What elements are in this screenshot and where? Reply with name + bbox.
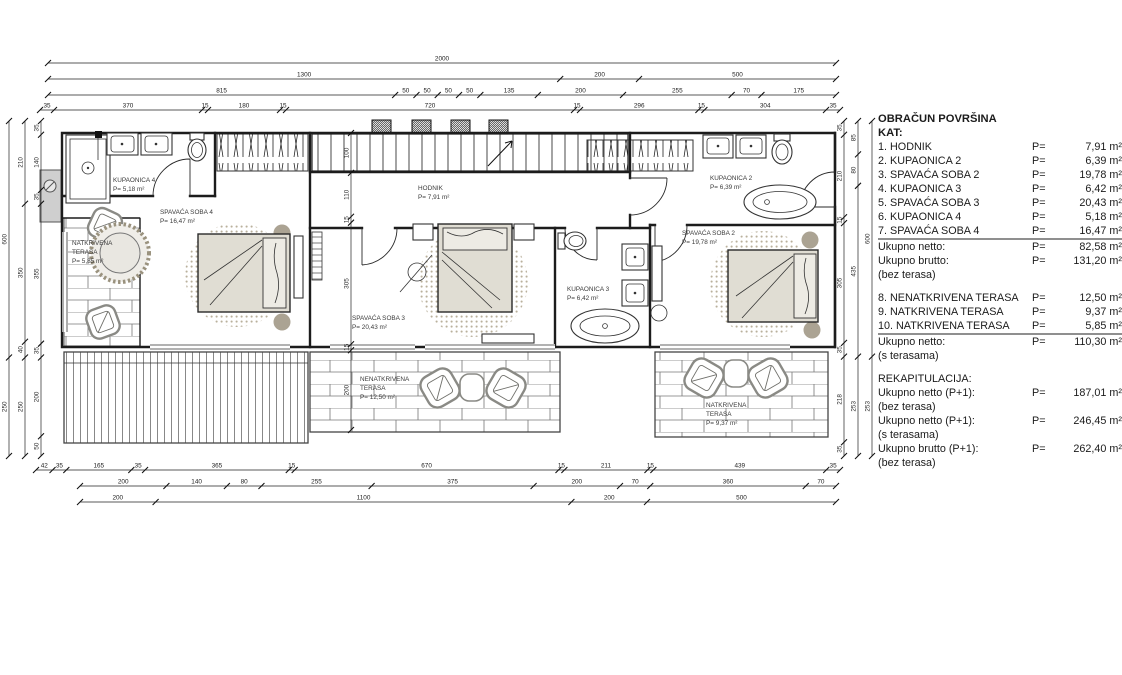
- dimension-value: 2000: [435, 56, 450, 63]
- dimension-value: 600: [865, 233, 872, 244]
- dimension-value: 360: [723, 479, 734, 486]
- area-row-label: REKAPITULACIJA:: [878, 372, 1032, 386]
- dimension-value: 15: [288, 463, 296, 470]
- area-row-label: (s terasama): [878, 349, 1032, 363]
- dimension-chain-bottom_lower: 2001100200500: [77, 495, 839, 506]
- area-row-p: P=: [1032, 386, 1060, 400]
- area-row-value: 5,85 m²: [1060, 319, 1122, 333]
- dimension-value: 35: [56, 463, 64, 470]
- area-row: (s terasama): [878, 349, 1122, 363]
- nightstand-bed2-bottom: [804, 322, 821, 339]
- nightstand-bed3-right: [514, 224, 534, 240]
- window-strip-bedroom4: [150, 344, 290, 350]
- exterior-unit: [40, 170, 61, 222]
- dimension-chain-right_inner: 35210153053521835: [837, 118, 848, 459]
- floorplan-sheet: KUPAONICA 4 P= 5,18 m² SPAVAĆA SOBA 4 P=…: [0, 0, 1122, 675]
- dimension-value: 305: [344, 278, 351, 289]
- svg-text:P= 5,18 m²: P= 5,18 m²: [113, 186, 144, 193]
- dimension-chain-left_outer: 600250: [2, 118, 13, 459]
- area-row-label: 8. NENATKRIVENA TERASA: [878, 291, 1032, 305]
- area-row-label: Ukupno netto (P+1):: [878, 386, 1032, 400]
- area-row: Ukupno netto (P+1):P=187,01 m²: [878, 386, 1122, 400]
- area-rows: 1. HODNIKP=7,91 m²2. KUPAONICA 2P=6,39 m…: [878, 140, 1122, 470]
- area-row-label: 10. NATKRIVENA TERASA: [878, 319, 1032, 333]
- dimension-value: 250: [18, 401, 25, 412]
- area-row: Ukupno netto:P=110,30 m²: [878, 335, 1122, 349]
- svg-text:P= 6,39 m²: P= 6,39 m²: [710, 184, 741, 191]
- table-uncovered-terrace: [460, 374, 484, 401]
- dimension-value: 35: [34, 193, 41, 201]
- area-row-label: 6. KUPAONICA 4: [878, 210, 1032, 224]
- dimension-value: 1100: [357, 495, 371, 502]
- area-row-label: Ukupno netto:: [878, 335, 1032, 349]
- dimension-value: 670: [421, 463, 432, 470]
- area-row-value: 20,43 m²: [1060, 196, 1122, 210]
- dimension-value: 50: [466, 88, 474, 95]
- area-row-p: P=: [1032, 196, 1060, 210]
- dimension-value: 253: [865, 401, 872, 412]
- dimension-chain-top.3: 353701518015720152961530435: [37, 103, 843, 114]
- area-row-value: 7,91 m²: [1060, 140, 1122, 154]
- svg-text:P= 12,50 m²: P= 12,50 m²: [360, 394, 395, 401]
- dimension-value: 211: [601, 463, 612, 470]
- area-row: 3. SPAVAĆA SOBA 2P=19,78 m²: [878, 168, 1122, 182]
- dimension-value: 200: [575, 88, 586, 95]
- dimension-value: 439: [734, 463, 745, 470]
- svg-text:TERASA: TERASA: [72, 249, 98, 256]
- dimension-value: 305: [837, 277, 844, 288]
- area-row-value: 246,45 m²: [1060, 414, 1122, 428]
- dimension-chain-right_outer: 600253: [865, 118, 876, 459]
- dimension-value: 85: [851, 134, 858, 142]
- dresser-bedroom2: [652, 246, 662, 301]
- area-row-value: 16,47 m²: [1060, 224, 1122, 238]
- nightstand-bed4-bottom: [274, 314, 291, 331]
- dimension-value: 600: [2, 233, 9, 244]
- door-hall-bathroom2: [630, 178, 667, 215]
- dimension-value: 200: [571, 479, 582, 486]
- area-row-p: P=: [1032, 140, 1060, 154]
- label-terrace-left: NATKRIVENA: [72, 240, 113, 247]
- dimension-value: 35: [34, 124, 41, 132]
- area-row-value: 131,20 m²: [1060, 254, 1122, 268]
- dimension-value: 15: [647, 463, 655, 470]
- area-row-spacer: [878, 363, 1122, 372]
- area-row-p: P=: [1032, 291, 1060, 305]
- area-row-label: 2. KUPAONICA 2: [878, 154, 1032, 168]
- dimension-value: 180: [239, 103, 250, 110]
- dimension-value: 15: [201, 103, 209, 110]
- area-row: (bez terasa): [878, 268, 1122, 282]
- wardrobe-left: [217, 134, 308, 171]
- area-row: 2. KUPAONICA 2P=6,39 m²: [878, 154, 1122, 168]
- area-row: Ukupno netto (P+1):P=246,45 m²: [878, 414, 1122, 428]
- panel-title: OBRAČUN POVRŠINA: [878, 112, 1122, 126]
- dimension-chain-left_middle: 21035040250: [18, 118, 29, 459]
- area-row-value: 6,42 m²: [1060, 182, 1122, 196]
- area-row-label: 1. HODNIK: [878, 140, 1032, 154]
- window-strip-bedroom2: [660, 344, 790, 350]
- area-row-value: 110,30 m²: [1060, 335, 1122, 349]
- dimension-value: 15: [698, 103, 706, 110]
- dimension-chain-top.1: 1300200500: [45, 72, 839, 83]
- area-row-value: 9,37 m²: [1060, 305, 1122, 319]
- dimension-value: 15: [279, 103, 287, 110]
- area-row-p: P=: [1032, 414, 1060, 428]
- dimension-value: 200: [344, 384, 351, 395]
- area-row: 6. KUPAONICA 4P=5,18 m²: [878, 210, 1122, 224]
- window-strip-terrace-left: [62, 232, 68, 332]
- dimension-value: 200: [118, 479, 129, 486]
- dimension-value: 15: [344, 216, 351, 224]
- dimension-value: 435: [851, 265, 858, 276]
- door-bathroom4: [153, 159, 190, 196]
- dimension-value: 35: [837, 346, 844, 354]
- area-row-p: P=: [1032, 182, 1060, 196]
- dimension-value: 375: [447, 479, 458, 486]
- area-row: REKAPITULACIJA:: [878, 372, 1122, 386]
- nightstand-bed3-left: [413, 224, 433, 240]
- dimension-value: 500: [736, 495, 747, 502]
- area-row: 10. NATKRIVENA TERASAP=5,85 m²: [878, 319, 1122, 335]
- dimension-chain-bottom_middle: 200140802553752007036070: [77, 479, 839, 490]
- area-row-label: (bez terasa): [878, 456, 1032, 470]
- dimension-value: 1300: [297, 72, 312, 79]
- area-row-value: 6,39 m²: [1060, 154, 1122, 168]
- dimension-chain-right_middle: 8580435253: [851, 118, 862, 459]
- area-row-value: 187,01 m²: [1060, 386, 1122, 400]
- dimension-value: 15: [344, 343, 351, 351]
- area-row-spacer: [878, 282, 1122, 291]
- dimension-value: 110: [344, 189, 351, 200]
- dimension-value: 200: [604, 495, 615, 502]
- area-row: (bez terasa): [878, 400, 1122, 414]
- area-row-label: 3. SPAVAĆA SOBA 2: [878, 168, 1032, 182]
- dimension-value: 50: [424, 88, 432, 95]
- area-row-label: Ukupno netto:: [878, 240, 1032, 254]
- area-row: (bez terasa): [878, 456, 1122, 470]
- area-row-label: (bez terasa): [878, 268, 1032, 282]
- area-row: 1. HODNIKP=7,91 m²: [878, 140, 1122, 154]
- area-row-p: P=: [1032, 168, 1060, 182]
- area-row: (s terasama): [878, 428, 1122, 442]
- tub-bathroom3: [571, 309, 639, 343]
- dimension-value: 720: [425, 103, 436, 110]
- closet-strip: [312, 232, 322, 280]
- area-row-p: P=: [1032, 224, 1060, 238]
- area-row: 9. NATKRIVENA TERASAP=9,37 m²: [878, 305, 1122, 319]
- dimension-value: 815: [216, 88, 227, 95]
- area-row: 5. SPAVAĆA SOBA 3P=20,43 m²: [878, 196, 1122, 210]
- dimension-value: 35: [837, 445, 844, 453]
- dimension-value: 200: [34, 391, 41, 402]
- dimension-value: 210: [837, 170, 844, 181]
- dimension-value: 365: [212, 463, 223, 470]
- area-row-p: P=: [1032, 254, 1060, 268]
- dimension-value: 200: [594, 72, 605, 79]
- label-bedroom2: SPAVAĆA SOBA 2: [682, 228, 735, 237]
- label-bathroom2: KUPAONICA 2: [710, 175, 753, 182]
- area-row-value: 12,50 m²: [1060, 291, 1122, 305]
- area-row: Ukupno netto:P=82,58 m²: [878, 240, 1122, 254]
- label-hall: HODNIK: [418, 185, 444, 192]
- dimension-value: 296: [634, 103, 645, 110]
- area-row-label: 4. KUPAONICA 3: [878, 182, 1032, 196]
- area-row-label: 9. NATKRIVENA TERASA: [878, 305, 1032, 319]
- dimension-value: 35: [43, 103, 51, 110]
- panel-subtitle: KAT:: [878, 126, 1122, 140]
- dimension-value: 40: [18, 346, 25, 354]
- nightstand-bed2-top: [802, 232, 819, 249]
- dimension-value: 250: [2, 401, 9, 412]
- bench-bedroom3: [482, 334, 534, 343]
- svg-text:TERASA: TERASA: [360, 385, 386, 392]
- area-row: 4. KUPAONICA 3P=6,42 m²: [878, 182, 1122, 196]
- dimension-value: 35: [34, 347, 41, 355]
- area-row-value: 5,18 m²: [1060, 210, 1122, 224]
- window-strip-bedroom3b: [425, 344, 555, 350]
- dimension-value: 35: [829, 103, 837, 110]
- bathtub-bathroom2: [744, 185, 816, 219]
- label-bedroom4: SPAVAĆA SOBA 4: [160, 207, 213, 216]
- dimension-value: 42: [41, 463, 49, 470]
- dimension-value: 140: [34, 157, 41, 168]
- area-row: Ukupno brutto:P=131,20 m²: [878, 254, 1122, 268]
- area-row-p: P=: [1032, 335, 1060, 349]
- dimension-value: 35: [830, 463, 838, 470]
- dimension-value: 218: [837, 394, 844, 405]
- dimension-value: 50: [445, 88, 453, 95]
- dimension-value: 255: [672, 88, 683, 95]
- area-row-p: P=: [1032, 240, 1060, 254]
- dimension-value: 15: [558, 463, 566, 470]
- dimension-value: 15: [837, 216, 844, 224]
- svg-text:P= 19,78 m²: P= 19,78 m²: [682, 239, 717, 246]
- area-row-label: (bez terasa): [878, 400, 1032, 414]
- deck-bottom-left: [64, 352, 308, 443]
- dimension-value: 200: [112, 495, 123, 502]
- wardrobe-right: [587, 140, 693, 171]
- label-uncovered-terrace: NENATKRIVENA: [360, 376, 410, 383]
- dimension-value: 70: [817, 479, 825, 486]
- dimension-value: 100: [344, 147, 351, 158]
- label-bedroom3: SPAVAĆA SOBA 3: [352, 313, 405, 322]
- area-row-label: Ukupno netto (P+1):: [878, 414, 1032, 428]
- dimension-value: 165: [93, 463, 104, 470]
- area-row-label: Ukupno brutto (P+1):: [878, 442, 1032, 456]
- dimension-chain-top.2: 8155050505013520025570175: [45, 88, 839, 99]
- area-row-label: 7. SPAVAĆA SOBA 4: [878, 224, 1032, 238]
- dimension-value: 255: [311, 479, 322, 486]
- staircase: [312, 134, 628, 171]
- dimension-value: 175: [793, 88, 804, 95]
- table-right-terrace: [724, 360, 748, 387]
- svg-text:P= 5,85 m²: P= 5,85 m²: [72, 258, 103, 265]
- svg-text:P= 16,47 m²: P= 16,47 m²: [160, 218, 195, 225]
- dresser-bedroom4: [294, 236, 303, 298]
- area-row-p: P=: [1032, 305, 1060, 319]
- dimension-chain-bottom_upper: 42351653536515670152111543935: [33, 463, 843, 474]
- stool-bedroom2: [651, 305, 667, 321]
- area-row-p: P=: [1032, 154, 1060, 168]
- svg-text:P= 9,37 m²: P= 9,37 m²: [706, 420, 737, 427]
- dimension-value: 70: [632, 479, 640, 486]
- dimension-value: 15: [573, 103, 581, 110]
- area-row: 7. SPAVAĆA SOBA 4P=16,47 m²: [878, 224, 1122, 240]
- dimension-value: 355: [34, 268, 41, 279]
- dimension-value: 140: [191, 479, 202, 486]
- area-row-p: P=: [1032, 442, 1060, 456]
- dimension-value: 210: [18, 157, 25, 168]
- area-row-label: (s terasama): [878, 428, 1032, 442]
- dimension-value: 135: [504, 88, 515, 95]
- dimension-value: 50: [402, 88, 410, 95]
- area-row-p: P=: [1032, 210, 1060, 224]
- area-row: 8. NENATKRIVENA TERASAP=12,50 m²: [878, 291, 1122, 305]
- dimension-value: 35: [135, 463, 143, 470]
- label-bathroom4: KUPAONICA 4: [113, 177, 156, 184]
- svg-text:P= 7,91 m²: P= 7,91 m²: [418, 194, 449, 201]
- area-row-p: P=: [1032, 319, 1060, 333]
- dimension-chain-left_inner: 35140353553520050: [34, 118, 45, 459]
- svg-text:P= 6,42 m²: P= 6,42 m²: [567, 295, 598, 302]
- label-terrace-right: NATKRIVENA: [706, 402, 747, 409]
- dimension-value: 80: [851, 166, 858, 174]
- dimension-value: 80: [241, 479, 249, 486]
- dimension-value: 370: [123, 103, 134, 110]
- area-row-label: Ukupno brutto:: [878, 254, 1032, 268]
- area-row-value: 82,58 m²: [1060, 240, 1122, 254]
- svg-text:TERASA: TERASA: [706, 411, 732, 418]
- dimension-value: 50: [34, 442, 41, 450]
- dimension-value: 350: [18, 267, 25, 278]
- dimension-value: 304: [760, 103, 771, 110]
- area-row-label: 5. SPAVAĆA SOBA 3: [878, 196, 1032, 210]
- door-bedroom3: [362, 228, 397, 265]
- area-calculation-panel: OBRAČUN POVRŠINA KAT: 1. HODNIKP=7,91 m²…: [878, 112, 1122, 470]
- dimension-chain-top.0: 2000: [45, 56, 839, 67]
- svg-text:P= 20,43 m²: P= 20,43 m²: [352, 324, 387, 331]
- dimension-value: 35: [837, 124, 844, 132]
- area-row: Ukupno brutto (P+1):P=262,40 m²: [878, 442, 1122, 456]
- label-bathroom3: KUPAONICA 3: [567, 286, 610, 293]
- dimension-value: 500: [732, 72, 743, 79]
- area-row-value: 262,40 m²: [1060, 442, 1122, 456]
- dimension-value: 253: [851, 401, 858, 412]
- area-row-value: 19,78 m²: [1060, 168, 1122, 182]
- dimension-value: 70: [743, 88, 751, 95]
